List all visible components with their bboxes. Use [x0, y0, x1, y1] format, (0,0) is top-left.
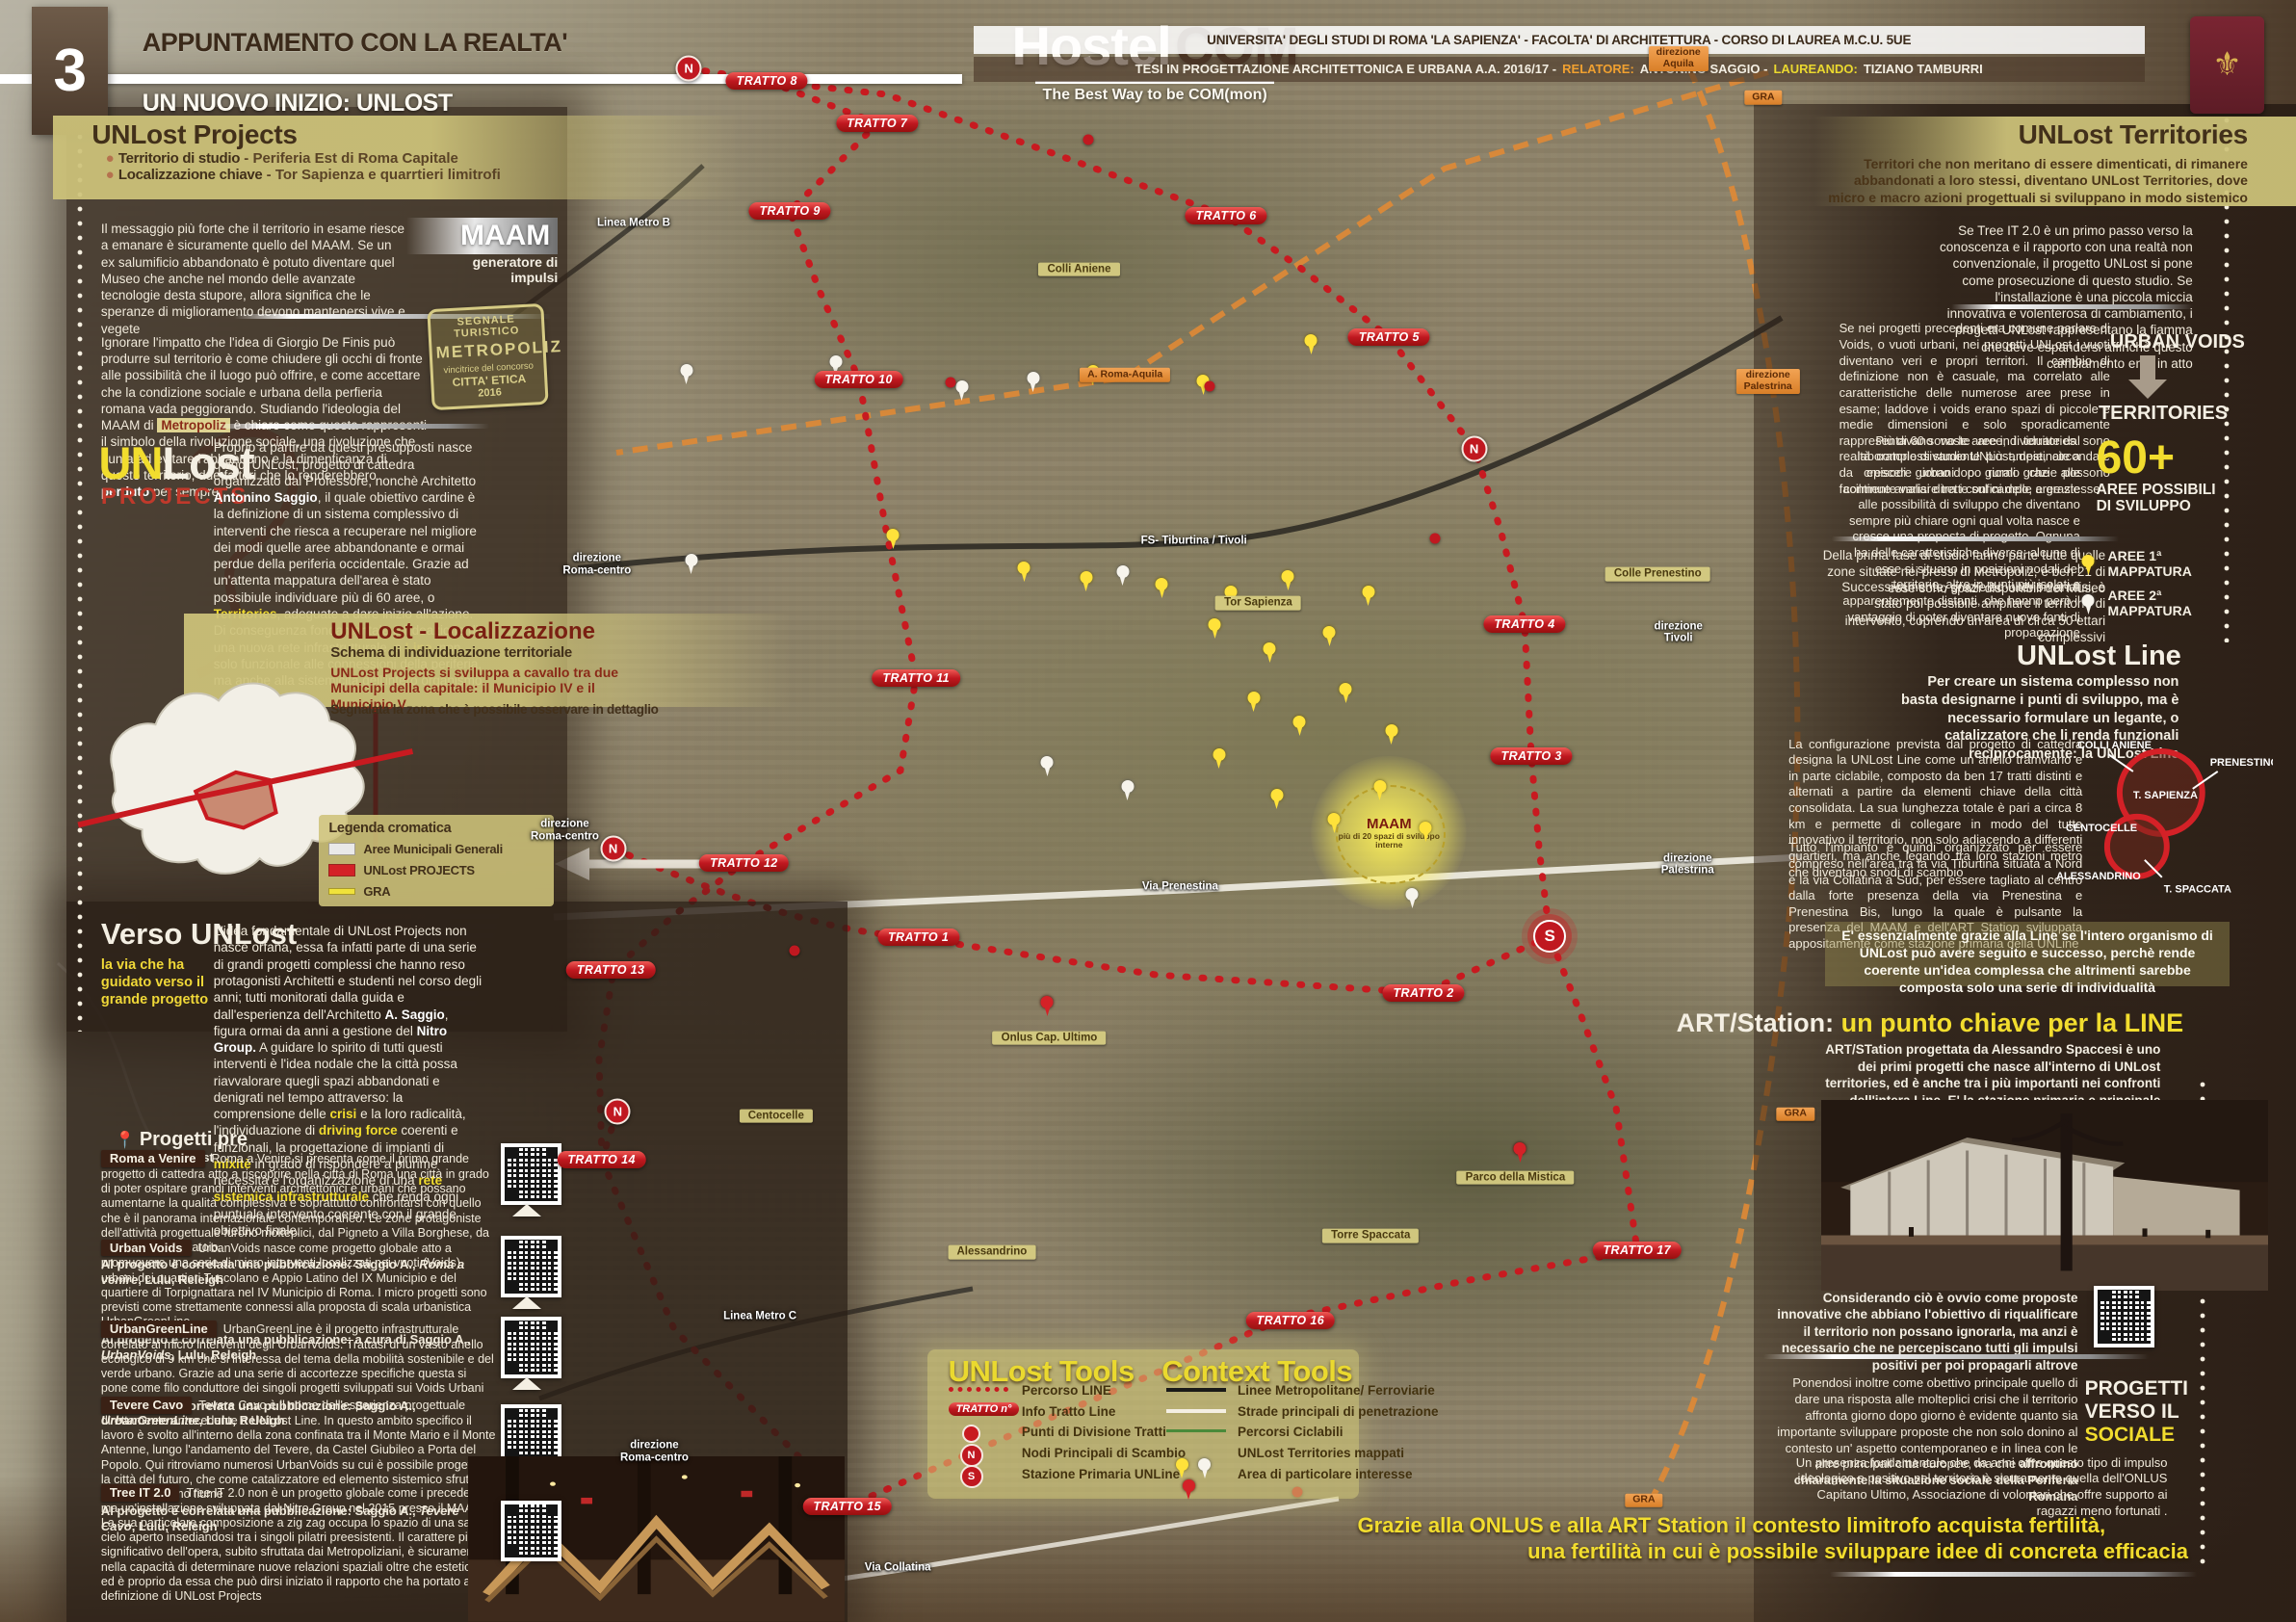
line-section-title: UNLost Line: [2017, 641, 2181, 672]
thesis-prefix: TESI IN PROGETTAZIONE ARCHITETTONICA E U…: [1135, 62, 1556, 76]
university-strip: UNIVERSITA' DEGLI STUDI DI ROMA 'LA SAPI…: [974, 26, 2145, 54]
tool-label-stazione: Stazione Primaria UNLine: [1022, 1467, 1180, 1481]
separator-bar: [1832, 536, 2119, 541]
considerando-paragraph: Considerando ciò è ovvio come proposte i…: [1772, 1290, 2077, 1374]
aree1-l2: MAPPATURA: [2108, 563, 2192, 579]
tool-label-strade: Strade principali di penetrazione: [1238, 1404, 1439, 1419]
diagram-t-spaccata: T. SPACCATA: [2163, 884, 2231, 896]
vp-saggio: A. Saggio: [384, 1007, 444, 1022]
aree2-l1: AREE 2ª: [2108, 588, 2162, 603]
final-statement-line1: Grazie alla ONLUS e alla ART Station il …: [1357, 1513, 2105, 1538]
poster-subkicker: UN NUOVO INIZIO: UNLOST: [143, 90, 453, 118]
separator-bar: [1763, 1354, 2150, 1359]
territories-word: TERRITORIES: [2099, 403, 2228, 425]
projects-bullet-2: ● Localizzazione chiave - Tor Sapienza e…: [106, 167, 501, 183]
red-swatch: [328, 864, 355, 876]
relatore-label: RELATORE:: [1562, 62, 1634, 76]
separator-bar: [1830, 1572, 2197, 1577]
maam-bar: MAAM: [406, 218, 558, 254]
legend-row-1: Aree Municipali Generali: [328, 841, 543, 858]
qr-arrow-icon: [512, 1204, 541, 1216]
header-white-bar: [66, 74, 962, 84]
bullet-dot-icon: ●: [106, 167, 115, 183]
qr-code-tree-it: [501, 1501, 561, 1562]
project-body: Tree IT 2.0 non è un progetto globale co…: [101, 1486, 490, 1603]
color-legend: Legenda cromatica Aree Municipali Genera…: [319, 815, 553, 905]
laureando-label: LAUREANDO:: [1773, 62, 1857, 76]
tool-label-linee-metro: Linee Metropolitane/ Ferroviarie: [1238, 1383, 1435, 1398]
sixty-sub1: AREE POSSIBILI: [2097, 482, 2216, 499]
diagram-centocelle: CENTOCELLE: [2065, 823, 2136, 834]
aree2-pin-icon: [2082, 594, 2095, 607]
aree1-label: AREE 1ªMAPPATURA: [2108, 548, 2192, 579]
legend-row-2: UNLost PROJECTS: [328, 862, 543, 879]
onlus-paragraph: Un presenza fondamentale che da anni off…: [1795, 1455, 2167, 1521]
maam-sub2: impulsi: [406, 270, 558, 285]
legend-title: Legenda cromatica: [328, 821, 543, 836]
yellow-swatch: [328, 888, 355, 895]
final-statement-line2: una fertilità in cui è possibile svilupp…: [1527, 1539, 2188, 1564]
crest-emblem-icon: ⚜: [2212, 45, 2241, 84]
tool-label-info-tratto: Info Tratto Line: [1022, 1404, 1116, 1419]
thesis-poster: 3 APPUNTAMENTO CON LA REALTA' UN NUOVO I…: [0, 0, 2296, 1622]
qr-code-urbangreenline: [501, 1317, 561, 1378]
project-entry-tree-it: Tree IT 2.0Tree IT 2.0 non è un progetto…: [101, 1484, 496, 1605]
pre-title: Progetti pre: [140, 1129, 248, 1150]
art-title-yellow: un punto chiave per la LINE: [1841, 1008, 2184, 1037]
cycle-path-symbol: [1166, 1429, 1226, 1432]
legend-item2: UNLost PROJECTS: [363, 863, 474, 877]
bullet-dot-icon: ●: [106, 150, 115, 167]
legend-item1: Aree Municipali Generali: [363, 842, 503, 856]
project-tag: Roma a Venire: [101, 1150, 205, 1167]
tool-label-ciclabili: Percorsi Ciclabili: [1238, 1425, 1344, 1439]
art-title-white: ART/Station:: [1677, 1008, 1834, 1037]
aree2-l2: MAPPATURA: [2108, 603, 2192, 618]
para3-b: , il quale obiettivo cardine è la defini…: [214, 490, 477, 605]
qr-code-art-station: [2094, 1286, 2154, 1347]
bullet2-value: - Tor Sapienza e quarrtieri limitrofi: [267, 167, 501, 183]
road-symbol: [1166, 1409, 1226, 1413]
thesis-strip: TESI IN PROGETTAZIONE ARCHITETTONICA E U…: [974, 57, 2145, 82]
down-arrow-icon: [2128, 355, 2167, 399]
territories-intro: Territori che non meritano di essere dim…: [1823, 156, 2248, 207]
project-tag: UrbanGreenLine: [101, 1321, 217, 1338]
qr-arrow-icon: [512, 1377, 541, 1390]
sixty-sub2: DI SVILUPPO: [2097, 498, 2191, 515]
tool-label-punti: Punti di Divisione Tratti: [1022, 1425, 1166, 1439]
projects-bullet-1: ● Territorio di studio - Periferia Est d…: [106, 150, 458, 167]
tratto-badge-symbol: TRATTO n°: [949, 1402, 1020, 1416]
metropoliz-tourist-sign: SEGNALE TURISTICO METROPOLIZ vincitrice …: [427, 303, 549, 410]
intro-paragraph: Il messaggio più forte che il territorio…: [101, 221, 406, 337]
project-tag: Urban Voids: [101, 1240, 192, 1257]
bullet2-label: Localizzazione chiave: [118, 167, 263, 183]
line-rings-diagram: COLLI ANIENE PRENESTINO T. SAPIENZA CENT…: [2048, 733, 2274, 925]
yellow-pin-symbol: [1176, 1458, 1188, 1471]
para3-a: Proprio a partire da questi presupposti …: [214, 440, 476, 488]
bullet1-value: - Periferia Est di Roma Capitale: [244, 150, 458, 167]
driving-force-highlight: driving force: [319, 1123, 398, 1138]
bullet1-label: Territorio di studio: [118, 150, 240, 167]
project-tag: Tevere Cavo: [101, 1397, 192, 1414]
railway-line: [578, 318, 1782, 568]
progetti-sociale-block: PROGETTI VERSO IL SOCIALE: [2085, 1377, 2188, 1447]
maam-generator-block: MAAM generatore di impulsi: [406, 218, 558, 285]
legend-row-3: GRA: [328, 883, 543, 901]
sign-line1: SEGNALE TURISTICO: [434, 313, 538, 342]
aree1-l1: AREE 1ª: [2108, 548, 2162, 563]
a24-highway-line: [616, 72, 1768, 453]
division-point-symbol: [962, 1425, 980, 1443]
pin-bullet-icon: 📍: [115, 1131, 135, 1149]
maam-sub1: generatore di: [406, 254, 558, 270]
qr-code-roma-a-venire: [501, 1143, 561, 1205]
aree2-label: AREE 2ªMAPPATURA: [2108, 588, 2192, 618]
node-symbol: N: [960, 1444, 983, 1467]
university-line: UNIVERSITA' DEGLI STUDI DI ROMA 'LA SAPI…: [1207, 33, 1911, 47]
percorso-line-symbol: [949, 1387, 1008, 1392]
qr-code-urban-voids: [501, 1236, 561, 1297]
diagram-prenestino: PRENESTINO: [2209, 757, 2273, 769]
aree1-pin-icon: [2082, 555, 2095, 567]
tool-label-interesse: Area di particolare interesse: [1238, 1467, 1413, 1481]
relatore-name: ANTONINO SAGGIO -: [1640, 62, 1768, 76]
project-tag: Tree IT 2.0: [101, 1484, 180, 1502]
maam-glow-area: MAAM più di 20 spazi di sviluppo interne: [1311, 756, 1467, 910]
separator-bar: [1951, 304, 2192, 309]
art-station-title: ART/Station: un punto chiave per la LINE: [1677, 1008, 2184, 1038]
urban-voids-word: URBAN VOIDS: [2110, 331, 2245, 353]
red-pin-symbol: [1183, 1479, 1195, 1492]
sixty-plus-number: 60+: [2097, 432, 2175, 484]
panel-number: 3: [53, 37, 86, 105]
art-station-render: [1821, 1100, 2269, 1292]
laureando-name: TIZIANO TAMBURRI: [1864, 62, 1983, 76]
verso-subtitle: la via che ha guidato verso il grande pr…: [101, 956, 225, 1008]
sapienza-crest-logo: ⚜: [2190, 16, 2263, 114]
tool-label-territories-mappati: UNLost Territories mappati: [1238, 1446, 1404, 1460]
brand-tagline: The Best Way to be COM(mon): [1005, 87, 1304, 104]
white-swatch: [328, 843, 355, 855]
diagram-t-sapienza: T. SAPIENZA: [2132, 790, 2197, 801]
sign-line2: METROPOLIZ: [435, 338, 539, 363]
sociale-l1: PROGETTI: [2085, 1377, 2188, 1400]
tool-label-nodi: Nodi Principali di Scambio: [1022, 1446, 1186, 1460]
separator-bar: [214, 424, 489, 429]
sociale-l2: VERSO IL: [2085, 1400, 2188, 1424]
diagram-colli-aniene: COLLI ANIENE: [2076, 740, 2151, 751]
tool-label-percorso: Percorso LINE: [1022, 1383, 1111, 1398]
legend-item3: GRA: [363, 884, 390, 899]
sociale-l3: SOCIALE: [2085, 1424, 2188, 1447]
second-phase-paragraph: Successivamente, grazie ad ulteriori ana…: [1813, 579, 2105, 645]
territories-title: UNLost Territories: [2019, 119, 2248, 150]
crisi-highlight: crisi: [330, 1107, 357, 1121]
para3-saggio: Antonino Saggio: [214, 490, 318, 505]
station-symbol: S: [960, 1465, 983, 1488]
metro-line-symbol: [1166, 1388, 1226, 1392]
qr-arrow-icon: [512, 1296, 541, 1309]
projects-title: UNLost Projects: [91, 119, 297, 150]
diagram-alessandrino: ALESSANDRINO: [2056, 871, 2141, 882]
maam-dashed-ring: [1336, 785, 1446, 884]
poster-kicker: APPUNTAMENTO CON LA REALTA': [143, 28, 567, 58]
maam-title: MAAM: [460, 220, 550, 251]
line-highlight-text: E' essenzialmente grazie alla Line se l'…: [1837, 927, 2218, 997]
unlost-un: UN: [99, 437, 163, 488]
